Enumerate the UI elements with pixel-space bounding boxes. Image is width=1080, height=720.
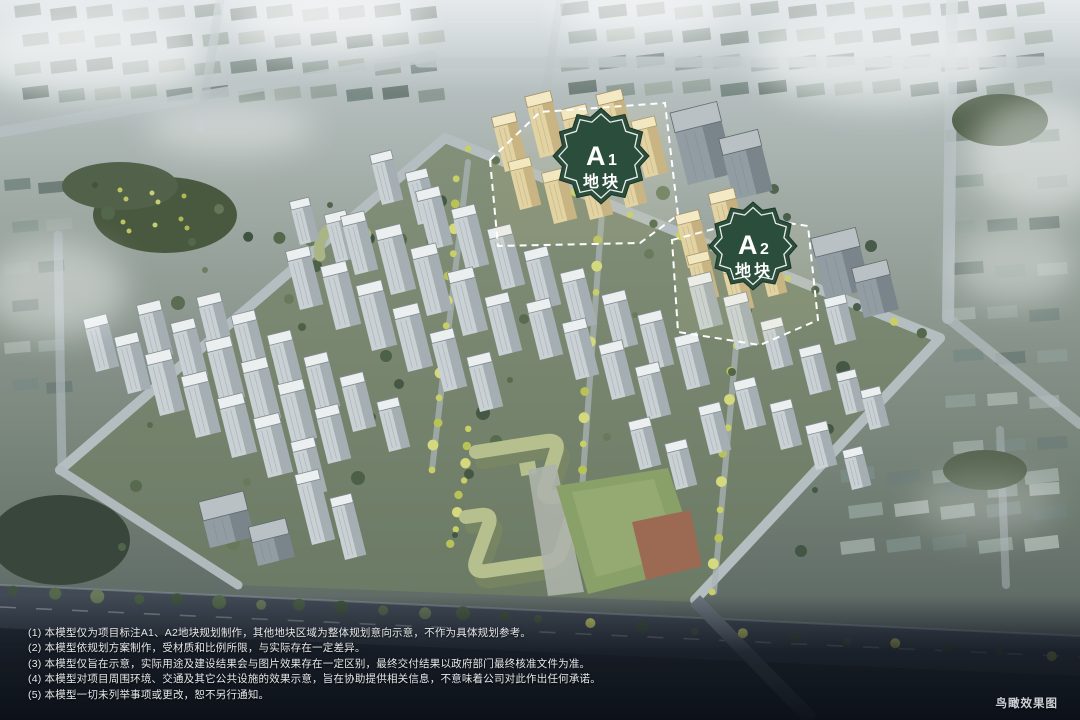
disclaimer-line: (3) 本模型仅旨在示意，实际用途及建设结果会与图片效果存在一定区别，最终交付结… — [28, 657, 601, 672]
disclaimer-line: (5) 本模型一切未列举事项或更改，恕不另行通知。 — [28, 688, 601, 703]
disclaimer-line: (1) 本模型仅为项目标注A1、A2地块规划制作，其他地块区域为整体规划意向示意… — [28, 626, 601, 641]
badge-a2-label: 地块 — [735, 261, 773, 280]
scene-canvas: A 1 地块 A 2 地块 — [0, 0, 1080, 720]
disclaimer-block: (1) 本模型仅为项目标注A1、A2地块规划制作，其他地块区域为整体规划意向示意… — [28, 626, 601, 703]
badge-a1-letter: A — [586, 141, 606, 171]
badge-a2-number: 2 — [760, 241, 769, 258]
badge-a2-letter: A — [738, 230, 758, 260]
badge-a1-number: 1 — [608, 152, 617, 169]
aerial-rendering: A 1 地块 A 2 地块 (1) 本模型仅为项目标注A1、A2地块规划制作，其… — [0, 0, 1080, 720]
badge-a1-label: 地块 — [583, 172, 621, 191]
disclaimer-line: (4) 本模型对项目周围环境、交通及其它公共设施的效果示意，旨在协助提供相关信息… — [28, 672, 601, 687]
disclaimer-line: (2) 本模型依规划方案制作，受材质和比例所限，与实际存在一定差异。 — [28, 641, 601, 656]
image-type-caption: 鸟瞰效果图 — [996, 695, 1059, 711]
